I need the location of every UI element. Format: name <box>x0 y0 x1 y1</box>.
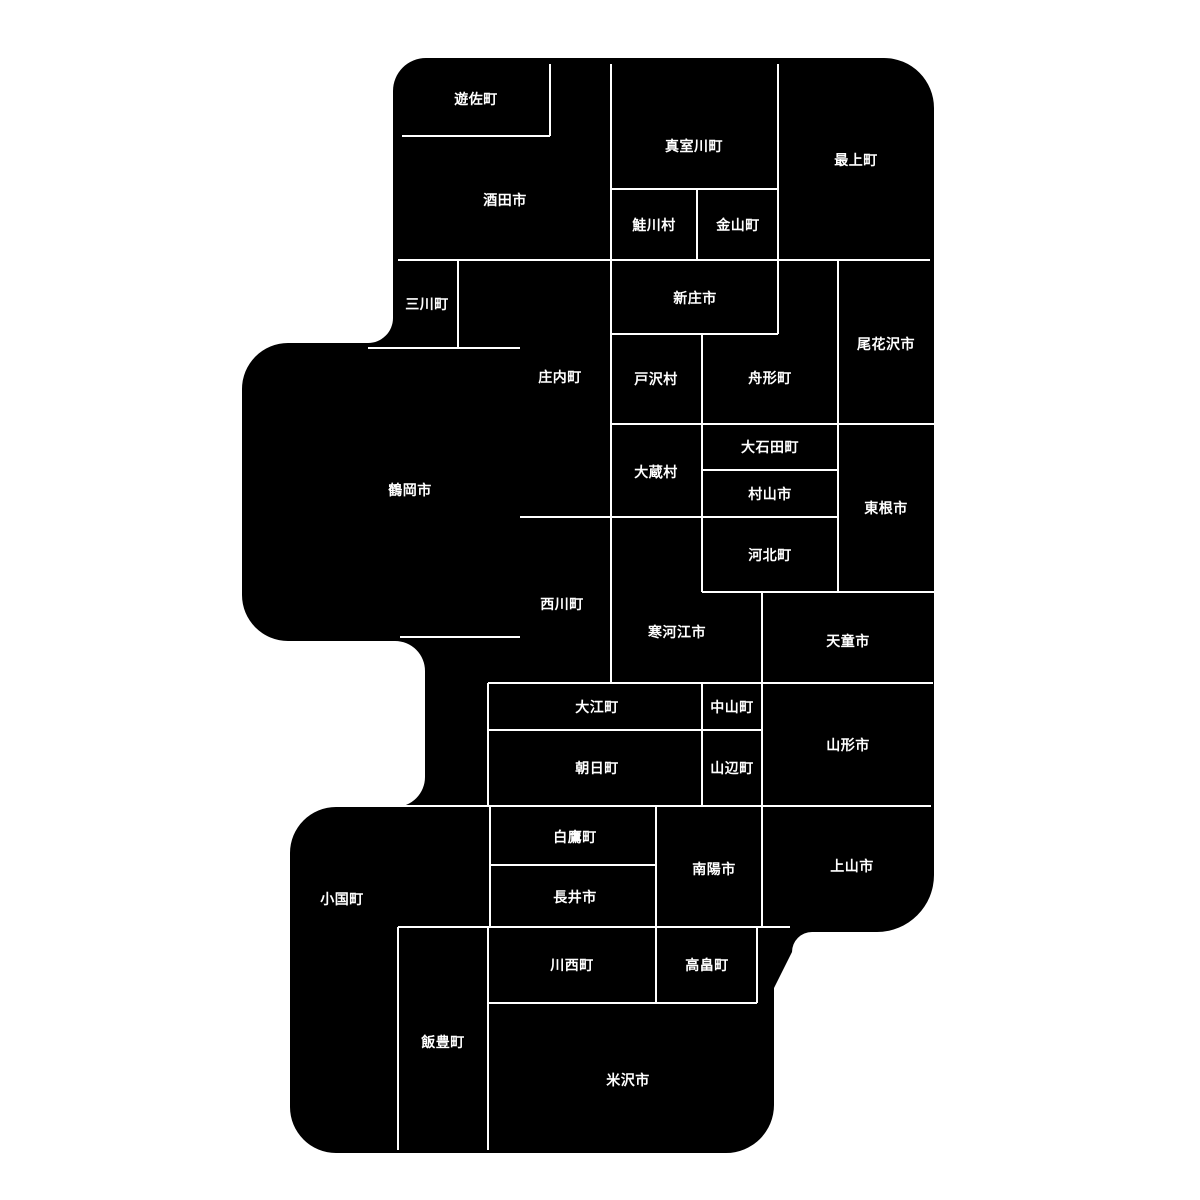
region-label-murayama[interactable]: 村山市 <box>748 484 792 504</box>
region-label-sakata[interactable]: 酒田市 <box>483 190 527 210</box>
region-label-shinjo[interactable]: 新庄市 <box>673 288 717 308</box>
region-label-nagai[interactable]: 長井市 <box>553 887 597 907</box>
region-label-shirataka[interactable]: 白鷹町 <box>553 827 597 847</box>
region-label-sagae[interactable]: 寒河江市 <box>648 622 706 642</box>
region-label-oguni[interactable]: 小国町 <box>320 889 364 909</box>
region-label-nanyo[interactable]: 南陽市 <box>692 859 736 879</box>
region-label-kahoku[interactable]: 河北町 <box>748 545 792 565</box>
region-label-tozawa[interactable]: 戸沢村 <box>634 369 678 389</box>
region-label-yamagata[interactable]: 山形市 <box>826 735 870 755</box>
region-label-oishida[interactable]: 大石田町 <box>741 437 799 457</box>
region-labels: 遊佐町酒田市真室川町鮭川村金山町最上町三川町庄内町新庄市戸沢村舟形町尾花沢市鶴岡… <box>0 0 1200 1200</box>
region-label-iide[interactable]: 飯豊町 <box>421 1032 465 1052</box>
region-label-funagata[interactable]: 舟形町 <box>748 368 792 388</box>
region-label-sakegawa[interactable]: 鮭川村 <box>632 215 676 235</box>
region-label-kawanishi[interactable]: 川西町 <box>550 955 594 975</box>
region-label-shonai[interactable]: 庄内町 <box>538 367 582 387</box>
region-label-higashine[interactable]: 東根市 <box>864 498 908 518</box>
region-label-mikawa[interactable]: 三川町 <box>405 294 449 314</box>
region-label-yonezawa[interactable]: 米沢市 <box>606 1070 650 1090</box>
region-label-yamanobe[interactable]: 山辺町 <box>710 758 754 778</box>
region-label-takahata[interactable]: 高畠町 <box>685 955 729 975</box>
region-label-nishikawa[interactable]: 西川町 <box>540 594 584 614</box>
region-label-yuza[interactable]: 遊佐町 <box>454 89 498 109</box>
region-label-tsuruoka[interactable]: 鶴岡市 <box>388 480 432 500</box>
region-label-oe[interactable]: 大江町 <box>575 697 619 717</box>
region-label-okura[interactable]: 大蔵村 <box>634 462 678 482</box>
yamagata-municipality-map: 遊佐町酒田市真室川町鮭川村金山町最上町三川町庄内町新庄市戸沢村舟形町尾花沢市鶴岡… <box>0 0 1200 1200</box>
region-label-obanazawa[interactable]: 尾花沢市 <box>857 334 915 354</box>
region-label-tendo[interactable]: 天童市 <box>826 631 870 651</box>
region-label-kaneyama[interactable]: 金山町 <box>716 215 760 235</box>
region-label-kaminoyama[interactable]: 上山市 <box>830 856 874 876</box>
region-label-asahi[interactable]: 朝日町 <box>575 758 619 778</box>
region-label-mamurogawa[interactable]: 真室川町 <box>665 136 723 156</box>
region-label-mogami[interactable]: 最上町 <box>834 150 878 170</box>
region-label-nakayama[interactable]: 中山町 <box>710 697 754 717</box>
